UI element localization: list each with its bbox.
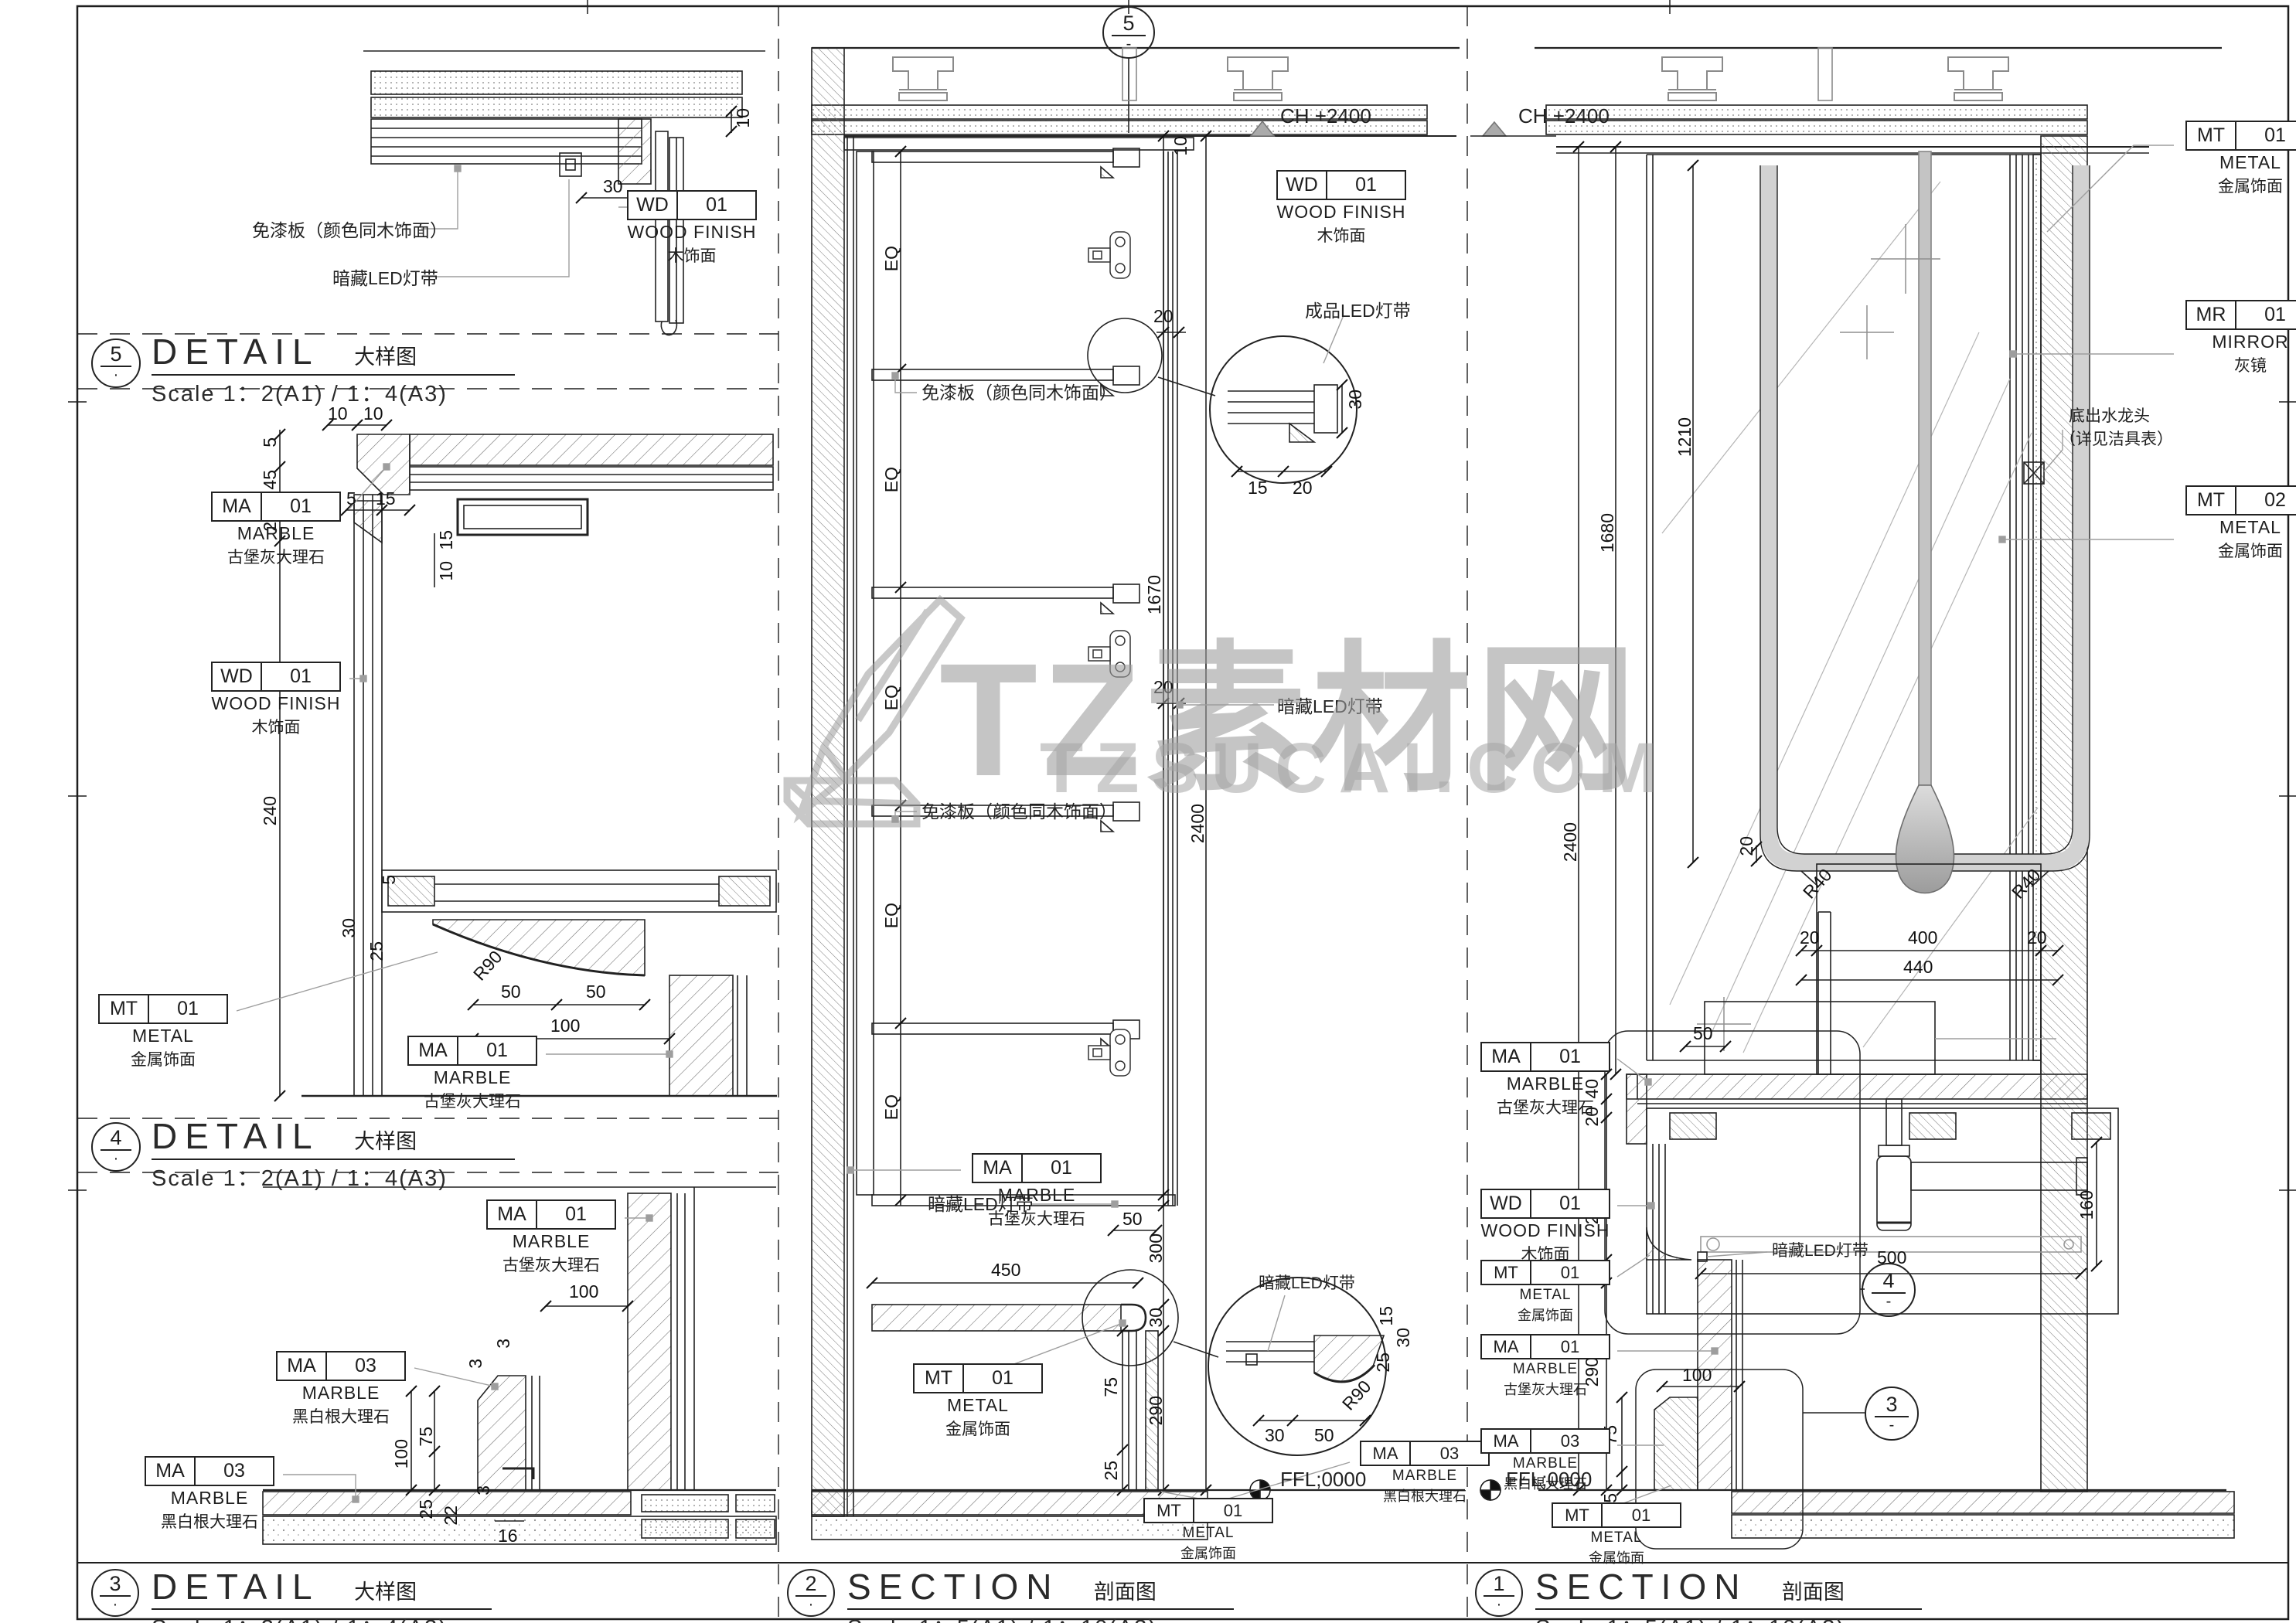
dim-50: 50 bbox=[586, 983, 606, 1001]
title-cn: 大样图 bbox=[354, 345, 417, 369]
tag-en: MARBLE bbox=[267, 1383, 414, 1404]
dim-450: 450 bbox=[991, 1261, 1020, 1279]
tag-num: 01 bbox=[2235, 301, 2296, 328]
note-led: 暗藏LED灯带 bbox=[1259, 1274, 1355, 1294]
tag-num: 01 bbox=[457, 1037, 536, 1064]
dim-100: 100 bbox=[393, 1439, 410, 1468]
dim-eq: EQ bbox=[883, 246, 901, 271]
dim-100: 100 bbox=[1682, 1366, 1712, 1384]
tag-cn: 金属饰面 bbox=[90, 1047, 237, 1070]
tag-code: MA bbox=[213, 493, 261, 520]
dim-10: 10 bbox=[1172, 136, 1190, 156]
material-tag-mr01: MR01 MIRROR 灰镜 bbox=[2177, 300, 2296, 376]
tag-box: MT01 bbox=[2185, 121, 2296, 151]
tag-code: MT bbox=[1145, 1499, 1193, 1522]
callout-sheet: - bbox=[1872, 1292, 1906, 1310]
tag-box: MA01 bbox=[407, 1036, 537, 1066]
dim-400: 400 bbox=[1908, 929, 1937, 947]
title-num: 4 bbox=[110, 1127, 121, 1148]
dim-20: 20 bbox=[1153, 308, 1174, 325]
tag-num: 01 bbox=[261, 493, 339, 520]
tag-code: MT bbox=[2187, 487, 2235, 514]
tag-en: MARBLE bbox=[1472, 1361, 1619, 1378]
tag-box: WD01 bbox=[627, 190, 757, 220]
tag-cn: 古堡灰大理石 bbox=[1472, 1379, 1619, 1399]
dim-20: 20 bbox=[1800, 929, 1820, 947]
title-sub: · bbox=[100, 1149, 132, 1167]
title-circle-3: 3 · bbox=[91, 1569, 139, 1617]
tag-box: MA01 bbox=[211, 492, 341, 522]
material-tag-ma01: MA01 MARBLE 古堡灰大理石 bbox=[1472, 1334, 1619, 1399]
tag-num: 01 bbox=[1530, 1043, 1609, 1070]
material-tag-ma03: MA03 MARBLE 黑白根大理石 bbox=[267, 1351, 414, 1427]
dim-eq: EQ bbox=[883, 1094, 901, 1120]
note-panel: 免漆板（颜色同木饰面） bbox=[252, 219, 448, 242]
tag-cn: 木饰面 bbox=[1268, 223, 1415, 247]
dim-3: 3 bbox=[475, 1485, 492, 1495]
title-circle-1: 1 · bbox=[1475, 1569, 1523, 1617]
title-detail4: DETAIL 大样图 Scale 1：2(A1) / 1：4(A3) bbox=[152, 1115, 515, 1193]
tag-code: MT bbox=[915, 1365, 962, 1392]
callout-detail4-ref: 4 - bbox=[1862, 1263, 1916, 1317]
dim-22: 22 bbox=[442, 1506, 460, 1526]
tag-code: MA bbox=[1482, 1043, 1530, 1070]
tag-box: MA03 bbox=[1360, 1441, 1490, 1466]
tag-cn: 金属饰面 bbox=[1543, 1547, 1690, 1567]
tag-code: WD bbox=[1482, 1190, 1530, 1217]
title-scale: Scale 1：2(A1) / 1：4(A3) bbox=[152, 1160, 515, 1193]
tag-en: MIRROR bbox=[2177, 332, 2296, 352]
dim-5: 5 bbox=[261, 437, 279, 447]
dim-25: 25 bbox=[1102, 1461, 1120, 1481]
title-text: DETAIL bbox=[152, 1116, 320, 1156]
title-cn: 剖面图 bbox=[1782, 1580, 1845, 1604]
tag-num: 01 bbox=[1326, 172, 1405, 199]
dim-20: 20 bbox=[1293, 479, 1313, 497]
dim-50: 50 bbox=[1693, 1025, 1713, 1043]
tag-en: MARBLE bbox=[963, 1185, 1110, 1206]
tag-cn: 古堡灰大理石 bbox=[478, 1253, 625, 1276]
title-num: 3 bbox=[109, 1573, 121, 1594]
tag-box: MT01 bbox=[913, 1363, 1043, 1393]
dim-100: 100 bbox=[550, 1017, 580, 1035]
title-sub: · bbox=[100, 366, 132, 383]
tag-num: 01 bbox=[2235, 122, 2296, 149]
tag-en: MARBLE bbox=[399, 1067, 546, 1088]
ceiling-height-label: CH +2400 bbox=[1518, 104, 1610, 129]
tag-num: 01 bbox=[1021, 1155, 1100, 1182]
tag-en: MARBLE bbox=[203, 523, 349, 544]
dim-15: 15 bbox=[1378, 1306, 1395, 1326]
note-panel: 免漆板（颜色同木饰面） bbox=[921, 801, 1117, 823]
callout-detail5: 5 - bbox=[1102, 6, 1155, 59]
dim-25: 25 bbox=[417, 1499, 435, 1519]
title-sub: · bbox=[100, 1595, 130, 1613]
tag-box: MA01 bbox=[972, 1153, 1102, 1183]
tag-code: WD bbox=[629, 192, 676, 219]
tag-code: MA bbox=[146, 1458, 194, 1485]
tag-cn: 金属饰面 bbox=[2177, 174, 2296, 197]
dim-25: 25 bbox=[1375, 1352, 1392, 1373]
material-tag-mt01: MT01 METAL 金属饰面 bbox=[90, 994, 237, 1070]
material-tag-wd01: WD01 WOOD FINISH 木饰面 bbox=[1472, 1189, 1619, 1265]
material-tag-mt01: MT01 METAL 金属饰面 bbox=[904, 1363, 1051, 1440]
tag-num: 01 bbox=[1530, 1190, 1609, 1217]
tag-box: MR01 bbox=[2185, 300, 2296, 330]
dim-30: 30 bbox=[1265, 1427, 1285, 1444]
title-detail5: DETAIL 大样图 Scale 1：2(A1) / 1：4(A3) bbox=[152, 331, 515, 408]
tag-en: METAL bbox=[904, 1395, 1051, 1416]
tag-code: MA bbox=[278, 1352, 325, 1380]
callout-num: 5 bbox=[1122, 12, 1134, 34]
material-tag-ma01: MA01 MARBLE 古堡灰大理石 bbox=[1472, 1042, 1619, 1118]
material-tag-ma03: MA03 MARBLE 黑白根大理石 bbox=[136, 1456, 283, 1533]
tag-cn: 木饰面 bbox=[618, 243, 765, 267]
dim-3: 3 bbox=[467, 1359, 485, 1369]
tag-en: METAL bbox=[90, 1026, 237, 1046]
tag-cn: 黑白根大理石 bbox=[267, 1404, 414, 1427]
note-faucet-line2: （详见洁具表） bbox=[2059, 430, 2173, 450]
tag-box: MT02 bbox=[2185, 485, 2296, 515]
tag-en: METAL bbox=[1543, 1529, 1690, 1546]
tag-num: 01 bbox=[261, 663, 339, 690]
tag-en: METAL bbox=[1135, 1525, 1282, 1542]
title-scale: Scale 1：2(A1) / 1：4(A3) bbox=[152, 376, 515, 408]
callout-num: 4 bbox=[1882, 1270, 1894, 1291]
dim-75: 75 bbox=[417, 1427, 435, 1447]
tag-cn: 黑白根大理石 bbox=[136, 1509, 283, 1533]
title-circle-2: 2 · bbox=[787, 1569, 835, 1617]
dim-45: 45 bbox=[261, 470, 279, 490]
title-circle-4: 4 · bbox=[91, 1122, 141, 1172]
tag-num: 03 bbox=[325, 1352, 404, 1380]
title-scale: Scale 1：2(A1) / 1：4(A3) bbox=[152, 1610, 492, 1623]
dim-eq: EQ bbox=[883, 685, 901, 710]
material-tag-wd01: WD01 WOOD FINISH 木饰面 bbox=[1268, 170, 1415, 247]
ceiling-height-label: CH +2400 bbox=[1280, 104, 1371, 129]
tag-cn: 黑白根大理石 bbox=[1472, 1473, 1619, 1493]
tag-cn: 古堡灰大理石 bbox=[203, 545, 349, 568]
dim-75: 75 bbox=[1102, 1377, 1120, 1397]
dim-20: 20 bbox=[1738, 836, 1756, 856]
tag-code: WD bbox=[1278, 172, 1326, 199]
tag-code: MA bbox=[488, 1201, 536, 1228]
dim-1680: 1680 bbox=[1599, 513, 1616, 553]
tag-box: MT01 bbox=[98, 994, 228, 1024]
tag-code: MA bbox=[1361, 1442, 1409, 1465]
dim-50: 50 bbox=[501, 983, 521, 1001]
tag-cn: 古堡灰大理石 bbox=[1472, 1095, 1619, 1118]
tag-box: WD01 bbox=[211, 662, 341, 692]
title-section2: SECTION 剖面图 Scale 1：5(A1) / 1：10(A3) bbox=[847, 1566, 1234, 1623]
dim-30: 30 bbox=[1347, 390, 1364, 410]
title-text: DETAIL bbox=[152, 1567, 320, 1607]
tag-cn: 古堡灰大理石 bbox=[963, 1206, 1110, 1230]
tag-num: 01 bbox=[148, 995, 227, 1022]
callout-num: 3 bbox=[1886, 1393, 1897, 1415]
tag-en: METAL bbox=[1472, 1287, 1619, 1304]
tag-cn: 金属饰面 bbox=[904, 1417, 1051, 1440]
tag-code: MA bbox=[409, 1037, 457, 1064]
tag-en: WOOD FINISH bbox=[618, 222, 765, 243]
tag-cn: 木饰面 bbox=[203, 715, 349, 738]
title-sub: · bbox=[795, 1595, 826, 1613]
tag-num: 01 bbox=[676, 192, 755, 219]
dim-30: 30 bbox=[1147, 1308, 1165, 1328]
title-cn: 大样图 bbox=[354, 1130, 417, 1153]
dim-20: 20 bbox=[2027, 929, 2047, 947]
title-cn: 大样图 bbox=[354, 1580, 417, 1604]
dim-30: 30 bbox=[340, 918, 358, 938]
tag-box: MT01 bbox=[1552, 1502, 1681, 1528]
material-tag-ma01: MA01 MARBLE 古堡灰大理石 bbox=[478, 1199, 625, 1276]
title-text: DETAIL bbox=[152, 332, 320, 372]
tag-en: MARBLE bbox=[478, 1231, 625, 1252]
title-num: 1 bbox=[1493, 1573, 1504, 1594]
tag-box: MA03 bbox=[276, 1351, 406, 1381]
title-scale: Scale 1：5(A1) / 1：10(A3) bbox=[1535, 1610, 1922, 1623]
tag-cn: 古堡灰大理石 bbox=[399, 1089, 546, 1112]
note-led: 暗藏LED灯带 bbox=[1772, 1241, 1868, 1261]
material-tag-mt01: MT01 METAL 金属饰面 bbox=[1543, 1502, 1690, 1567]
title-num: 2 bbox=[805, 1573, 816, 1594]
tag-num: 01 bbox=[962, 1365, 1041, 1392]
material-tag-mt01: MT01 METAL 金属饰面 bbox=[1472, 1260, 1619, 1325]
note-led: 暗藏LED灯带 bbox=[1277, 696, 1383, 718]
tag-box: MT01 bbox=[1143, 1498, 1273, 1523]
dim-20: 20 bbox=[1153, 679, 1174, 696]
dim-eq: EQ bbox=[883, 467, 901, 492]
dim-1210: 1210 bbox=[1676, 417, 1694, 457]
tag-code: MA bbox=[973, 1155, 1021, 1182]
title-text: SECTION bbox=[1535, 1567, 1747, 1607]
tag-en: WOOD FINISH bbox=[203, 693, 349, 714]
tag-box: MA03 bbox=[1480, 1428, 1610, 1454]
tag-box: MA03 bbox=[145, 1456, 274, 1486]
tag-num: 03 bbox=[194, 1458, 273, 1485]
title-num: 5 bbox=[110, 343, 121, 365]
tag-num: 02 bbox=[2235, 487, 2296, 514]
dim-1670: 1670 bbox=[1146, 575, 1163, 614]
dim-3: 3 bbox=[495, 1339, 513, 1349]
material-tag-ma03: MA03 MARBLE 黑白根大理石 bbox=[1472, 1428, 1619, 1493]
tag-en: METAL bbox=[2177, 152, 2296, 173]
callout-sheet: - bbox=[1112, 35, 1146, 53]
dim-15: 15 bbox=[1248, 479, 1268, 497]
material-tag-ma01: MA01 MARBLE 古堡灰大理石 bbox=[963, 1153, 1110, 1230]
dim-5: 5 bbox=[380, 875, 398, 885]
title-text: SECTION bbox=[847, 1567, 1059, 1607]
note-faucet-line1: 底出水龙头 bbox=[2069, 407, 2150, 427]
dim-100: 100 bbox=[569, 1283, 598, 1301]
title-circle-5: 5 · bbox=[91, 339, 141, 388]
tag-code: MR bbox=[2187, 301, 2235, 328]
dim-15: 15 bbox=[376, 490, 396, 508]
drawing-sheet: WD01 WOOD FINISH 木饰面 MA01 MARBLE 古堡灰大理石 … bbox=[0, 0, 2296, 1623]
dim-2400: 2400 bbox=[1562, 822, 1579, 862]
tag-cn: 金属饰面 bbox=[2177, 539, 2296, 562]
tag-box: WD01 bbox=[1276, 170, 1406, 200]
callout-sheet: - bbox=[1875, 1416, 1909, 1434]
tag-code: MA bbox=[1482, 1430, 1530, 1452]
material-tag-wd01: WD01 WOOD FINISH 木饰面 bbox=[618, 190, 765, 267]
dim-290: 290 bbox=[1147, 1396, 1165, 1425]
tag-box: MT01 bbox=[1480, 1260, 1610, 1285]
tag-en: MARBLE bbox=[1472, 1455, 1619, 1472]
dim-50: 50 bbox=[1314, 1427, 1334, 1444]
tag-en: WOOD FINISH bbox=[1268, 202, 1415, 223]
dim-16: 16 bbox=[498, 1527, 518, 1545]
title-detail3: DETAIL 大样图 Scale 1：2(A1) / 1：4(A3) bbox=[152, 1566, 492, 1623]
material-tag-mt02: MT02 METAL 金属饰面 bbox=[2177, 485, 2296, 562]
tag-num: 01 bbox=[1530, 1261, 1609, 1284]
title-cn: 剖面图 bbox=[1094, 1580, 1157, 1604]
tag-code: MA bbox=[1482, 1335, 1530, 1358]
material-tag-mt01: MT01 METAL 金属饰面 bbox=[2177, 121, 2296, 197]
tag-num: 03 bbox=[1530, 1430, 1609, 1452]
tag-num: 01 bbox=[536, 1201, 615, 1228]
tag-num: 01 bbox=[1193, 1499, 1272, 1522]
dim-10: 10 bbox=[734, 108, 752, 128]
tag-en: METAL bbox=[2177, 517, 2296, 538]
tag-box: MA01 bbox=[1480, 1334, 1610, 1359]
tag-code: MT bbox=[2187, 122, 2235, 149]
note-led: 暗藏LED灯带 bbox=[332, 267, 438, 290]
note-led-product: 成品LED灯带 bbox=[1305, 300, 1411, 322]
dim-15: 15 bbox=[438, 530, 455, 550]
tag-en: MARBLE bbox=[1472, 1073, 1619, 1094]
dim-50: 50 bbox=[1122, 1210, 1143, 1228]
tag-box: MA01 bbox=[1480, 1042, 1610, 1072]
tag-code: WD bbox=[213, 663, 261, 690]
tag-en: MARBLE bbox=[136, 1488, 283, 1509]
dim-240: 240 bbox=[261, 796, 279, 825]
title-section1: SECTION 剖面图 Scale 1：5(A1) / 1：10(A3) bbox=[1535, 1566, 1922, 1623]
dim-25: 25 bbox=[368, 941, 386, 961]
tag-num: 01 bbox=[1530, 1335, 1609, 1358]
tag-code: MT bbox=[1553, 1504, 1601, 1526]
dim-300: 300 bbox=[1147, 1233, 1165, 1263]
tag-en: WOOD FINISH bbox=[1472, 1220, 1619, 1241]
tag-cn: 金属饰面 bbox=[1472, 1305, 1619, 1325]
dim-160: 160 bbox=[2078, 1190, 2096, 1220]
dim-30: 30 bbox=[1395, 1328, 1412, 1348]
dim-eq: EQ bbox=[883, 903, 901, 928]
dim-2400: 2400 bbox=[1189, 804, 1207, 843]
dim-440: 440 bbox=[1903, 958, 1933, 976]
note-panel: 免漆板（颜色同木饰面） bbox=[921, 382, 1117, 404]
tag-code: MT bbox=[100, 995, 148, 1022]
material-tag-ma01: MA01 MARBLE 古堡灰大理石 bbox=[203, 492, 349, 568]
tag-box: MA01 bbox=[486, 1199, 616, 1230]
title-scale: Scale 1：5(A1) / 1：10(A3) bbox=[847, 1610, 1234, 1623]
tag-cn: 灰镜 bbox=[2177, 353, 2296, 376]
tag-num: 01 bbox=[1601, 1504, 1680, 1526]
material-tag-mt01: MT01 METAL 金属饰面 bbox=[1135, 1498, 1282, 1563]
title-sub: · bbox=[1484, 1595, 1514, 1613]
callout-detail3-ref: 3 - bbox=[1865, 1387, 1919, 1441]
dim-10: 10 bbox=[438, 561, 455, 581]
tag-code: MT bbox=[1482, 1261, 1530, 1284]
material-tag-ma01: MA01 MARBLE 古堡灰大理石 bbox=[399, 1036, 546, 1112]
tag-box: WD01 bbox=[1480, 1189, 1610, 1219]
tag-cn: 金属饰面 bbox=[1135, 1543, 1282, 1563]
material-tag-wd01: WD01 WOOD FINISH 木饰面 bbox=[203, 662, 349, 738]
